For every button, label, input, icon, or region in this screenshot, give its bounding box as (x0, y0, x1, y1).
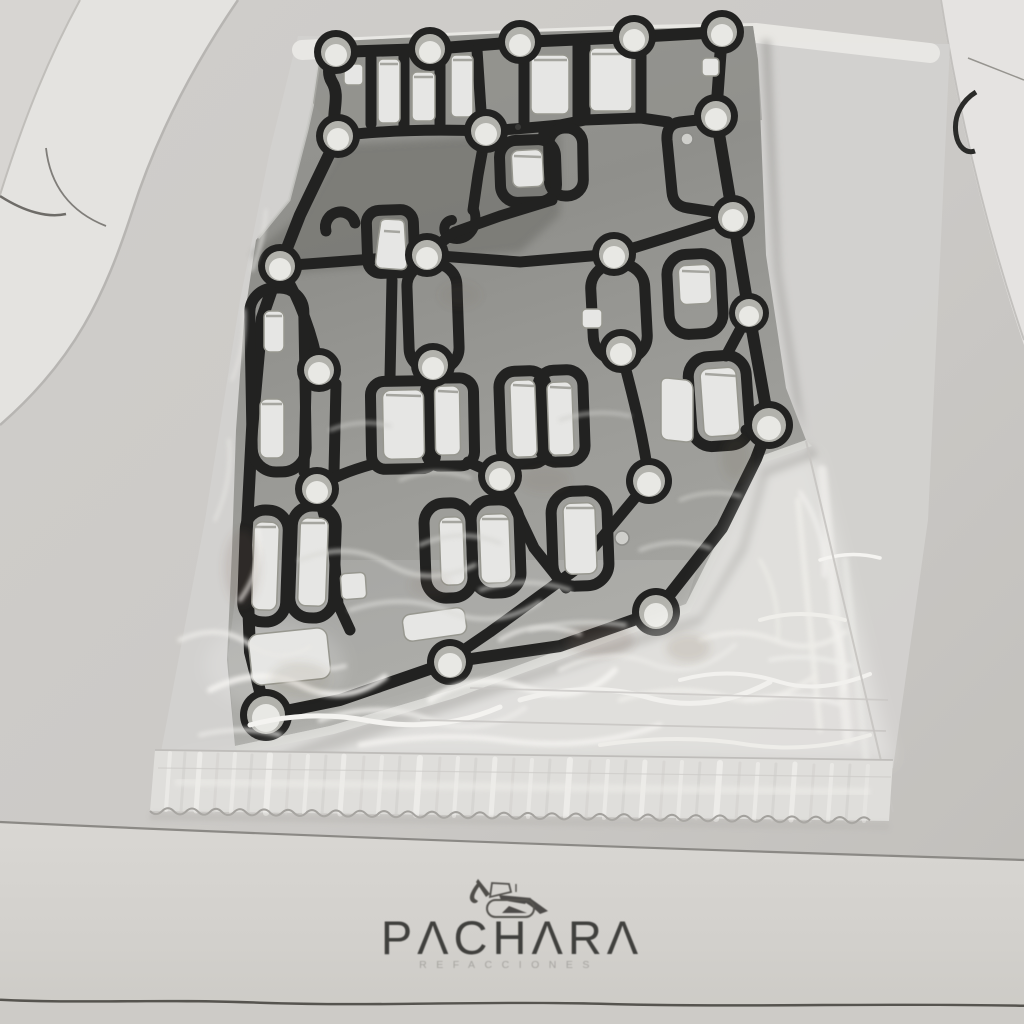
svg-text:REFACCIONES: REFACCIONES (419, 959, 599, 971)
svg-text:PΛCHΛRΛ: PΛCHΛRΛ (381, 911, 643, 964)
